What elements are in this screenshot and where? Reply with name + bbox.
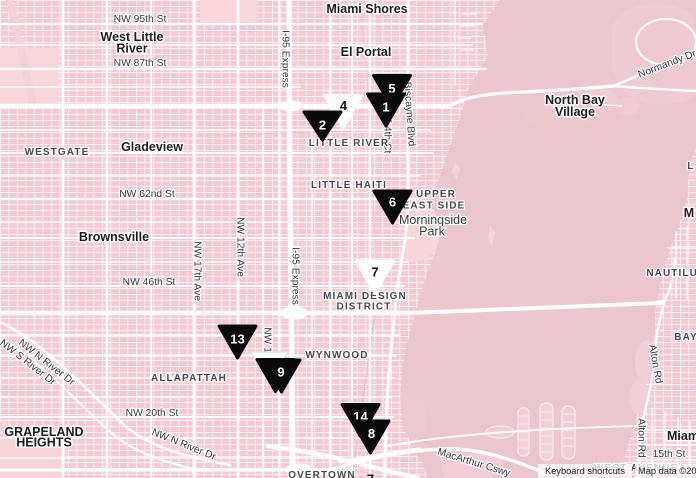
svg-text:WYNWOOD: WYNWOOD — [305, 350, 368, 361]
svg-text:Gladeview: Gladeview — [121, 140, 183, 154]
svg-text:7: 7 — [367, 472, 374, 478]
svg-text:NW 20th St: NW 20th St — [126, 408, 179, 419]
svg-text:I-95 Express: I-95 Express — [290, 247, 301, 305]
svg-text:I-95 Express: I-95 Express — [280, 30, 291, 88]
svg-text:NW 46th St: NW 46th St — [123, 277, 176, 288]
svg-text:Brownsville: Brownsville — [79, 230, 149, 244]
svg-text:NW 62nd St: NW 62nd St — [119, 189, 175, 200]
svg-text:NW 17th Ave: NW 17th Ave — [192, 241, 203, 301]
svg-text:Map data ©2018: Map data ©2018 — [638, 466, 696, 476]
svg-text:LITTLE HAITI: LITTLE HAITI — [311, 180, 387, 191]
svg-text:NW 87th St: NW 87th St — [114, 58, 167, 69]
svg-text:1: 1 — [382, 100, 389, 115]
svg-text:8: 8 — [368, 426, 375, 441]
svg-text:15th St: 15th St — [653, 449, 686, 460]
svg-text:Miami Shores: Miami Shores — [326, 2, 407, 16]
svg-text:2: 2 — [319, 118, 326, 133]
svg-text:El Portal: El Portal — [341, 45, 392, 59]
svg-text:Alton Rd: Alton Rd — [636, 418, 647, 458]
svg-text:Miami Bea: Miami Bea — [667, 429, 696, 443]
svg-text:L: L — [687, 161, 694, 172]
svg-text:NW 12th Ave: NW 12th Ave — [235, 217, 246, 277]
svg-text:NW 1: NW 1 — [262, 327, 273, 353]
svg-text:9: 9 — [277, 365, 284, 380]
svg-text:GRAPELANDHEIGHTS: GRAPELANDHEIGHTS — [4, 425, 83, 450]
svg-text:NAUTILUS: NAUTILUS — [646, 268, 696, 279]
svg-text:13: 13 — [230, 332, 244, 347]
svg-text:OVERTOWN: OVERTOWN — [288, 470, 356, 478]
svg-text:Keyboard shortcuts: Keyboard shortcuts — [545, 466, 625, 476]
svg-text:ALLAPATTAH: ALLAPATTAH — [151, 373, 227, 384]
svg-text:NW 95th St: NW 95th St — [114, 14, 167, 25]
svg-text:BAY: BAY — [674, 332, 696, 343]
svg-text:M: M — [684, 206, 694, 220]
svg-text:WESTGATE: WESTGATE — [25, 147, 90, 158]
svg-text:6: 6 — [389, 195, 396, 210]
svg-text:7: 7 — [371, 265, 378, 280]
